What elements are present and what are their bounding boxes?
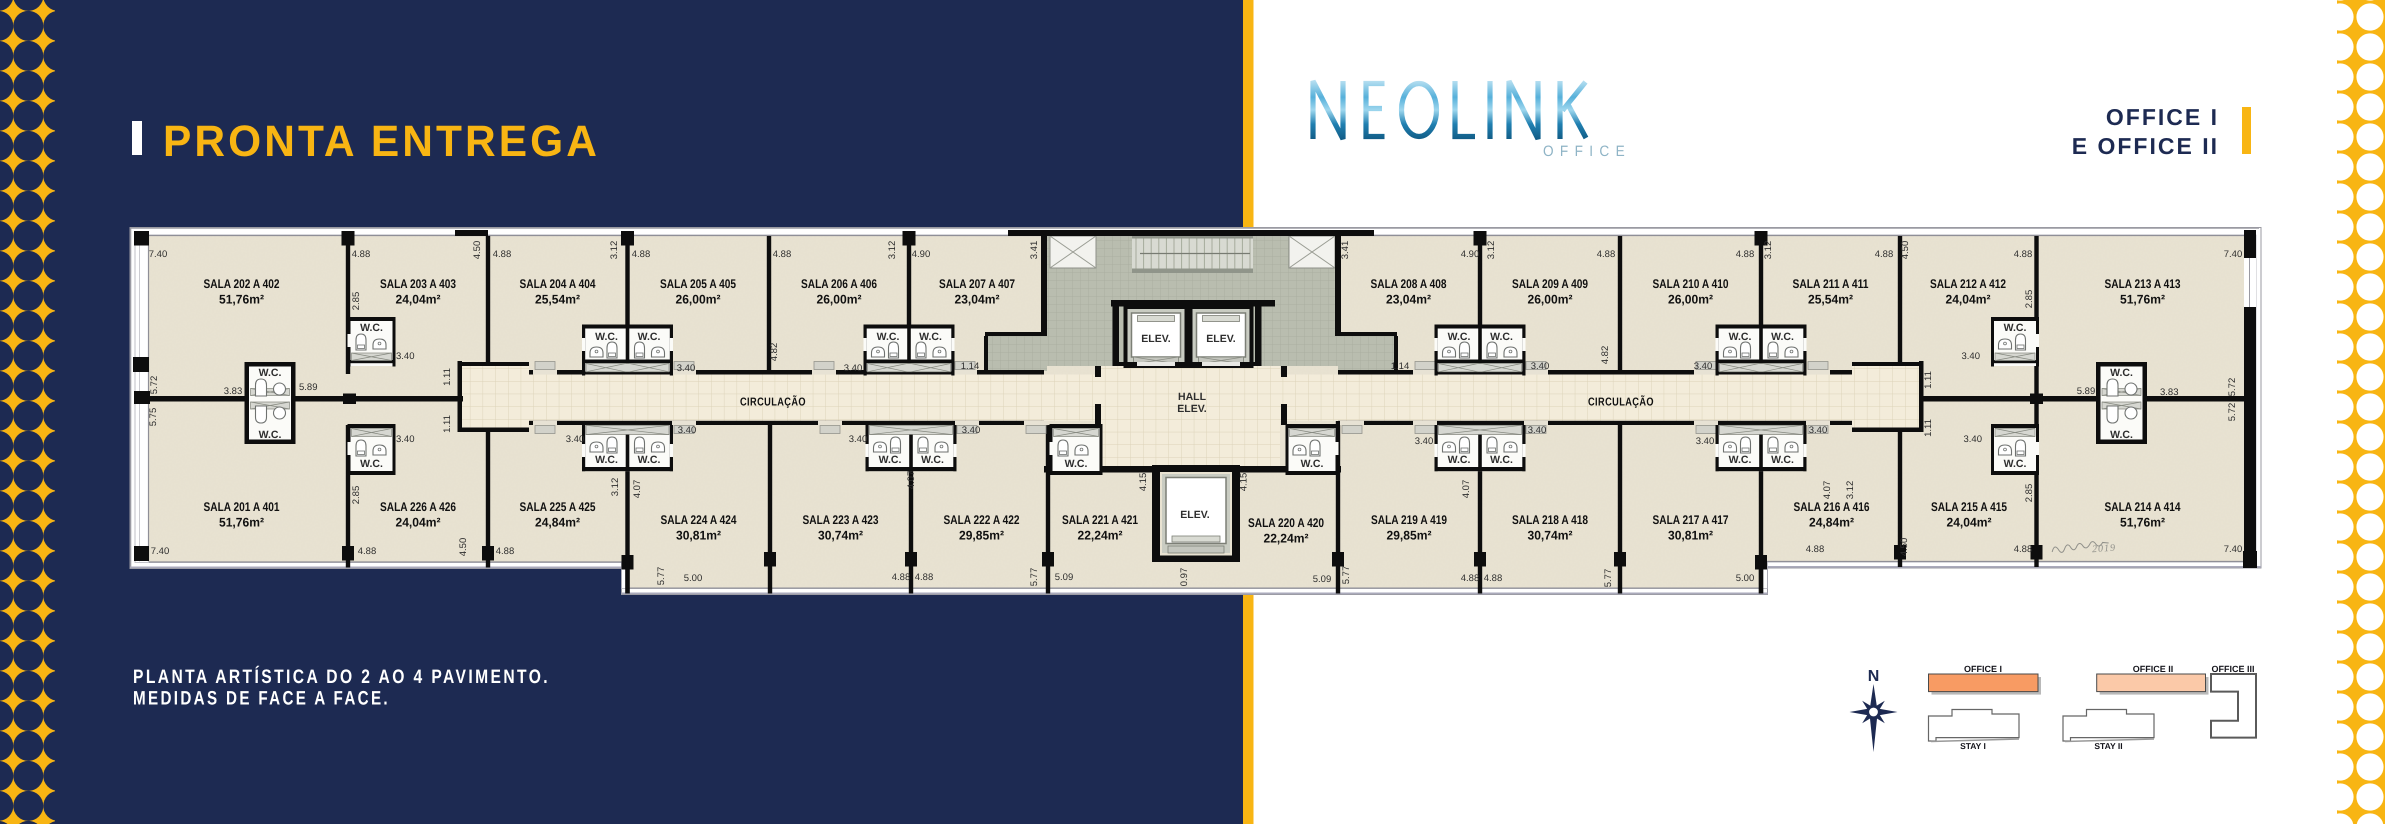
svg-text:SALA 224 A 424: SALA 224 A 424	[661, 513, 737, 527]
svg-text:26,00m²: 26,00m²	[1668, 293, 1713, 307]
svg-text:22,24m²: 22,24m²	[1078, 529, 1123, 543]
svg-text:1.14: 1.14	[1391, 361, 1410, 372]
svg-text:3.40: 3.40	[1962, 351, 1981, 362]
svg-text:4.88: 4.88	[632, 249, 651, 260]
svg-text:SALA 202 A 402: SALA 202 A 402	[204, 277, 280, 291]
svg-text:SALA 206 A 406: SALA 206 A 406	[801, 277, 877, 291]
svg-text:W.C.: W.C.	[259, 367, 282, 379]
svg-text:SALA 225 A 425: SALA 225 A 425	[520, 500, 596, 514]
svg-text:30,81m²: 30,81m²	[676, 529, 721, 543]
svg-text:W.C.: W.C.	[259, 429, 282, 441]
svg-text:SALA 215 A 415: SALA 215 A 415	[1931, 500, 2007, 514]
svg-text:W.C.: W.C.	[1065, 458, 1088, 470]
svg-text:4.15: 4.15	[1138, 473, 1149, 492]
svg-text:4.50: 4.50	[1900, 241, 1911, 260]
svg-text:SALA 212 A 412: SALA 212 A 412	[1930, 277, 2006, 291]
svg-text:4.88: 4.88	[1806, 544, 1825, 555]
svg-text:W.C.: W.C.	[360, 322, 383, 334]
svg-text:SALA 223 A 423: SALA 223 A 423	[803, 513, 879, 527]
svg-text:51,76m²: 51,76m²	[2120, 293, 2165, 307]
svg-text:W.C.: W.C.	[1771, 331, 1794, 343]
svg-text:CIRCULAÇÃO: CIRCULAÇÃO	[740, 395, 806, 409]
svg-text:W.C.: W.C.	[1771, 454, 1794, 466]
svg-text:2019: 2019	[2092, 543, 2117, 556]
svg-text:3.40: 3.40	[566, 434, 585, 445]
svg-text:W.C.: W.C.	[919, 331, 942, 343]
svg-text:2.85: 2.85	[2024, 484, 2035, 503]
svg-text:3.41: 3.41	[1340, 241, 1351, 260]
svg-text:4.90: 4.90	[1461, 249, 1480, 260]
svg-text:OFFICE I: OFFICE I	[1964, 664, 2002, 674]
svg-text:3.12: 3.12	[1486, 241, 1497, 260]
svg-text:4.88: 4.88	[352, 249, 371, 260]
svg-text:STAY I: STAY I	[1960, 741, 1986, 751]
svg-text:4.07: 4.07	[906, 471, 917, 490]
svg-text:SALA 207 A 407: SALA 207 A 407	[939, 277, 1015, 291]
svg-text:1.11: 1.11	[1923, 419, 1934, 437]
svg-text:4.07: 4.07	[632, 480, 643, 499]
svg-text:4.90: 4.90	[912, 249, 931, 260]
svg-text:2.85: 2.85	[2024, 290, 2035, 309]
svg-text:4.88: 4.88	[1597, 249, 1616, 260]
svg-text:SALA 203 A 403: SALA 203 A 403	[380, 277, 456, 291]
svg-text:SALA 209 A 409: SALA 209 A 409	[1512, 277, 1588, 291]
svg-text:24,84m²: 24,84m²	[535, 516, 580, 530]
svg-text:7.40: 7.40	[2224, 249, 2243, 260]
svg-text:3.40: 3.40	[962, 425, 981, 436]
svg-text:OFFICE III: OFFICE III	[2211, 664, 2254, 674]
svg-text:W.C.: W.C.	[1729, 331, 1752, 343]
svg-text:1.11: 1.11	[442, 368, 453, 386]
svg-text:W.C.: W.C.	[921, 454, 944, 466]
svg-text:3.12: 3.12	[1763, 241, 1774, 260]
svg-text:5.77: 5.77	[1603, 569, 1614, 588]
svg-text:30,74m²: 30,74m²	[818, 529, 863, 543]
svg-text:4.88: 4.88	[1875, 249, 1894, 260]
svg-text:SALA 205 A 405: SALA 205 A 405	[660, 277, 736, 291]
svg-text:26,00m²: 26,00m²	[817, 293, 862, 307]
svg-text:W.C.: W.C.	[2004, 458, 2027, 470]
svg-text:3.12: 3.12	[610, 478, 621, 497]
svg-text:4.50: 4.50	[1899, 538, 1910, 557]
svg-text:51,76m²: 51,76m²	[219, 516, 264, 530]
svg-text:OFFICE I: OFFICE I	[2106, 104, 2219, 130]
svg-text:4.88: 4.88	[1461, 573, 1480, 584]
svg-text:5.72: 5.72	[2227, 403, 2238, 422]
svg-text:26,00m²: 26,00m²	[1528, 293, 1573, 307]
svg-text:51,76m²: 51,76m²	[2120, 516, 2165, 530]
svg-text:5.89: 5.89	[299, 382, 318, 393]
svg-text:ELEV.: ELEV.	[1206, 333, 1235, 345]
svg-text:26,00m²: 26,00m²	[676, 293, 721, 307]
svg-text:W.C.: W.C.	[2110, 367, 2133, 379]
svg-text:30,81m²: 30,81m²	[1668, 529, 1713, 543]
svg-text:3.40: 3.40	[849, 434, 868, 445]
svg-text:7.40: 7.40	[2224, 544, 2243, 555]
svg-text:25,54m²: 25,54m²	[1808, 293, 1853, 307]
svg-text:3.40: 3.40	[844, 363, 863, 374]
svg-text:4.82: 4.82	[1600, 346, 1611, 365]
svg-text:PLANTA ARTÍSTICA DO 2 AO 4 PAV: PLANTA ARTÍSTICA DO 2 AO 4 PAVIMENTO.	[133, 665, 550, 688]
svg-text:24,04m²: 24,04m²	[1946, 293, 1991, 307]
svg-text:4.82: 4.82	[769, 343, 780, 362]
svg-text:3.40: 3.40	[1696, 436, 1715, 447]
svg-text:W.C.: W.C.	[1490, 331, 1513, 343]
svg-text:W.C.: W.C.	[595, 454, 618, 466]
svg-text:3.40: 3.40	[1694, 361, 1713, 372]
svg-text:SALA 218 A 418: SALA 218 A 418	[1512, 513, 1588, 527]
svg-text:29,85m²: 29,85m²	[1387, 529, 1432, 543]
svg-text:24,04m²: 24,04m²	[1947, 516, 1992, 530]
svg-text:5.09: 5.09	[1055, 572, 1074, 583]
svg-text:23,04m²: 23,04m²	[1386, 293, 1431, 307]
svg-text:5.72: 5.72	[2227, 378, 2238, 397]
svg-text:SALA 216 A 416: SALA 216 A 416	[1794, 500, 1870, 514]
svg-text:4.07: 4.07	[1822, 481, 1833, 500]
svg-text:SALA 204 A 404: SALA 204 A 404	[520, 277, 596, 291]
svg-text:3.40: 3.40	[1415, 436, 1434, 447]
svg-text:W.C.: W.C.	[877, 331, 900, 343]
svg-text:3.40: 3.40	[678, 425, 697, 436]
svg-text:SALA 213 A 413: SALA 213 A 413	[2105, 277, 2181, 291]
svg-text:5.77: 5.77	[1341, 566, 1352, 585]
svg-text:24,84m²: 24,84m²	[1809, 516, 1854, 530]
svg-text:0.97: 0.97	[1179, 568, 1190, 587]
svg-text:2.85: 2.85	[351, 292, 362, 311]
svg-text:4.88: 4.88	[493, 249, 512, 260]
svg-text:3.41: 3.41	[1029, 241, 1040, 260]
svg-text:SALA 210 A 410: SALA 210 A 410	[1653, 277, 1729, 291]
svg-text:W.C.: W.C.	[1301, 458, 1324, 470]
svg-text:4.88: 4.88	[892, 572, 911, 583]
svg-text:W.C.: W.C.	[1490, 454, 1513, 466]
svg-text:3.40: 3.40	[1528, 425, 1547, 436]
svg-text:24,04m²: 24,04m²	[396, 516, 441, 530]
svg-text:SALA 219 A 419: SALA 219 A 419	[1371, 513, 1447, 527]
svg-text:2.85: 2.85	[351, 486, 362, 505]
svg-text:E OFFICE II: E OFFICE II	[2072, 133, 2219, 159]
svg-text:W.C.: W.C.	[360, 458, 383, 470]
svg-text:3.83: 3.83	[2160, 387, 2179, 398]
svg-text:SALA 221 A 421: SALA 221 A 421	[1062, 513, 1138, 527]
svg-text:5.09: 5.09	[1313, 574, 1332, 585]
svg-text:ELEV.: ELEV.	[1177, 403, 1206, 415]
svg-text:5.75: 5.75	[148, 408, 159, 427]
svg-text:SALA 211 A 411: SALA 211 A 411	[1793, 277, 1869, 291]
svg-text:3.40: 3.40	[396, 434, 415, 445]
svg-text:W.C.: W.C.	[1448, 331, 1471, 343]
svg-text:5.72: 5.72	[149, 376, 160, 395]
svg-text:51,76m²: 51,76m²	[219, 293, 264, 307]
svg-text:SALA 208 A 408: SALA 208 A 408	[1371, 277, 1447, 291]
svg-text:SALA 220 A 420: SALA 220 A 420	[1248, 516, 1324, 530]
svg-text:3.40: 3.40	[1809, 425, 1828, 436]
svg-text:5.89: 5.89	[2077, 386, 2096, 397]
svg-text:W.C.: W.C.	[1729, 454, 1752, 466]
svg-text:W.C.: W.C.	[879, 454, 902, 466]
svg-text:4.07: 4.07	[1461, 480, 1472, 499]
svg-text:25,54m²: 25,54m²	[535, 293, 580, 307]
svg-text:3.40: 3.40	[677, 363, 696, 374]
svg-text:SALA 222 A 422: SALA 222 A 422	[944, 513, 1020, 527]
svg-text:4.50: 4.50	[472, 241, 483, 260]
svg-text:HALL: HALL	[1178, 391, 1207, 403]
svg-text:5.00: 5.00	[684, 573, 703, 584]
svg-text:4.88: 4.88	[2014, 249, 2033, 260]
svg-text:7.40: 7.40	[151, 546, 170, 557]
svg-text:SALA 214 A 414: SALA 214 A 414	[2105, 500, 2181, 514]
svg-text:3.40: 3.40	[1531, 361, 1550, 372]
svg-text:N: N	[1868, 668, 1880, 685]
svg-text:W.C.: W.C.	[595, 331, 618, 343]
svg-text:OFFICE: OFFICE	[1543, 143, 1631, 160]
svg-text:4.88: 4.88	[2014, 544, 2033, 555]
svg-text:30,74m²: 30,74m²	[1528, 529, 1573, 543]
svg-text:3.40: 3.40	[396, 351, 415, 362]
svg-text:3.12: 3.12	[1845, 481, 1856, 500]
svg-text:4.88: 4.88	[773, 249, 792, 260]
svg-text:SALA 226 A 426: SALA 226 A 426	[380, 500, 456, 514]
svg-text:SALA 201 A 401: SALA 201 A 401	[204, 500, 280, 514]
svg-text:1.11: 1.11	[442, 415, 453, 433]
svg-text:W.C.: W.C.	[638, 331, 661, 343]
svg-text:W.C.: W.C.	[2004, 322, 2027, 334]
svg-text:3.12: 3.12	[887, 241, 898, 260]
svg-text:ELEV.: ELEV.	[1180, 509, 1209, 521]
svg-text:CIRCULAÇÃO: CIRCULAÇÃO	[1588, 395, 1654, 409]
svg-text:7.40: 7.40	[149, 249, 168, 260]
svg-text:4.88: 4.88	[915, 572, 934, 583]
svg-text:OFFICE II: OFFICE II	[2133, 664, 2174, 674]
svg-text:ELEV.: ELEV.	[1141, 333, 1170, 345]
svg-text:23,04m²: 23,04m²	[955, 293, 1000, 307]
svg-text:STAY II: STAY II	[2094, 741, 2122, 751]
svg-text:22,24m²: 22,24m²	[1264, 532, 1309, 546]
svg-text:4.88: 4.88	[358, 546, 377, 557]
svg-text:24,04m²: 24,04m²	[396, 293, 441, 307]
svg-text:W.C.: W.C.	[638, 454, 661, 466]
svg-text:5.00: 5.00	[1736, 573, 1755, 584]
svg-text:4.88: 4.88	[1484, 573, 1503, 584]
svg-text:3.12: 3.12	[609, 241, 620, 260]
svg-text:5.77: 5.77	[656, 567, 667, 586]
svg-text:W.C.: W.C.	[2110, 429, 2133, 441]
svg-text:3.40: 3.40	[1964, 434, 1983, 445]
svg-text:3.83: 3.83	[224, 386, 243, 397]
svg-text:4.15: 4.15	[1239, 473, 1250, 492]
svg-text:4.88: 4.88	[496, 546, 515, 557]
svg-text:MEDIDAS DE FACE A FACE.: MEDIDAS DE FACE A FACE.	[133, 688, 390, 710]
svg-text:1.11: 1.11	[1923, 371, 1934, 389]
svg-text:1.14: 1.14	[961, 361, 980, 372]
svg-text:W.C.: W.C.	[1448, 454, 1471, 466]
svg-text:4.88: 4.88	[1736, 249, 1755, 260]
svg-text:PRONTA ENTREGA: PRONTA ENTREGA	[163, 117, 600, 166]
svg-text:5.77: 5.77	[1029, 568, 1040, 587]
svg-text:SALA 217 A 417: SALA 217 A 417	[1653, 513, 1729, 527]
svg-text:4.50: 4.50	[458, 538, 469, 557]
svg-text:29,85m²: 29,85m²	[959, 529, 1004, 543]
